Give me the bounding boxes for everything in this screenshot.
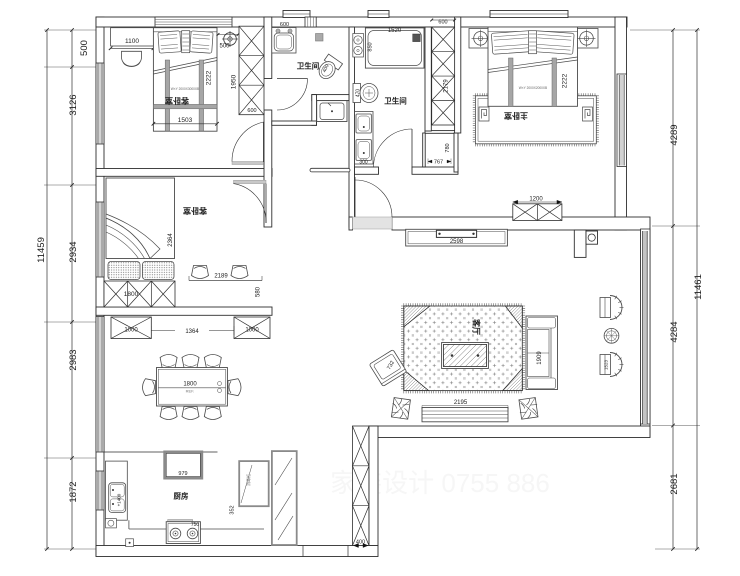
svg-text:+1400: +1400 — [117, 493, 122, 506]
svg-text:850: 850 — [368, 42, 374, 51]
svg-text:客厅: 客厅 — [472, 318, 482, 335]
svg-text:767: 767 — [434, 160, 443, 166]
svg-text:470: 470 — [356, 89, 362, 98]
svg-text:1000: 1000 — [124, 328, 138, 334]
svg-text:2195: 2195 — [454, 400, 468, 406]
svg-text:2983: 2983 — [68, 349, 79, 370]
svg-text:2364: 2364 — [168, 233, 174, 247]
svg-text:2934: 2934 — [68, 241, 79, 262]
svg-text:W×Y 2000X2000XB: W×Y 2000X2000XB — [519, 86, 547, 90]
svg-text:消毒柜: 消毒柜 — [245, 474, 251, 486]
svg-text:厨房: 厨房 — [174, 491, 189, 501]
svg-text:2179: 2179 — [444, 79, 450, 93]
svg-text:11459: 11459 — [36, 237, 47, 263]
svg-text:1520: 1520 — [388, 28, 402, 34]
svg-text:780: 780 — [445, 143, 451, 152]
svg-text:4284: 4284 — [669, 321, 680, 342]
svg-text:客卧室: 客卧室 — [183, 206, 208, 216]
svg-text:4289: 4289 — [669, 124, 680, 145]
svg-text:客卧室: 客卧室 — [165, 96, 190, 106]
svg-text:1523: 1523 — [604, 359, 609, 370]
svg-text:500: 500 — [79, 40, 90, 56]
svg-text:1100: 1100 — [125, 38, 139, 45]
svg-text:2598: 2598 — [450, 239, 464, 245]
svg-text:主卧室: 主卧室 — [504, 111, 528, 121]
svg-text:1950: 1950 — [231, 74, 238, 89]
svg-text:卫生间: 卫生间 — [297, 61, 320, 71]
svg-text:2222: 2222 — [206, 70, 213, 85]
svg-text:352: 352 — [230, 505, 236, 514]
svg-text:750: 750 — [191, 522, 200, 528]
svg-text:3126: 3126 — [68, 94, 79, 115]
svg-text:1909: 1909 — [537, 351, 543, 365]
svg-text:1503: 1503 — [178, 117, 193, 124]
svg-text:1800: 1800 — [124, 291, 139, 298]
svg-text:1364: 1364 — [185, 329, 199, 335]
svg-text:300: 300 — [359, 160, 368, 166]
svg-text:1000: 1000 — [245, 328, 259, 334]
svg-text:REF.: REF. — [186, 389, 195, 394]
svg-text:2222: 2222 — [562, 73, 569, 88]
svg-text:600: 600 — [438, 20, 447, 26]
svg-text:600: 600 — [280, 22, 289, 28]
svg-text:979: 979 — [178, 471, 187, 477]
svg-text:1200: 1200 — [529, 197, 543, 203]
svg-text:2681: 2681 — [669, 473, 680, 494]
svg-text:1800: 1800 — [183, 382, 197, 388]
svg-text:W×Y 2000X3000XB: W×Y 2000X3000XB — [171, 87, 199, 91]
svg-text:1872: 1872 — [68, 481, 79, 502]
svg-text:11461: 11461 — [693, 274, 704, 300]
svg-text:580: 580 — [256, 286, 262, 297]
svg-text:500: 500 — [219, 44, 230, 50]
svg-text:卫生间: 卫生间 — [384, 96, 407, 106]
svg-text:600: 600 — [247, 108, 256, 114]
svg-text:2189: 2189 — [214, 274, 228, 280]
